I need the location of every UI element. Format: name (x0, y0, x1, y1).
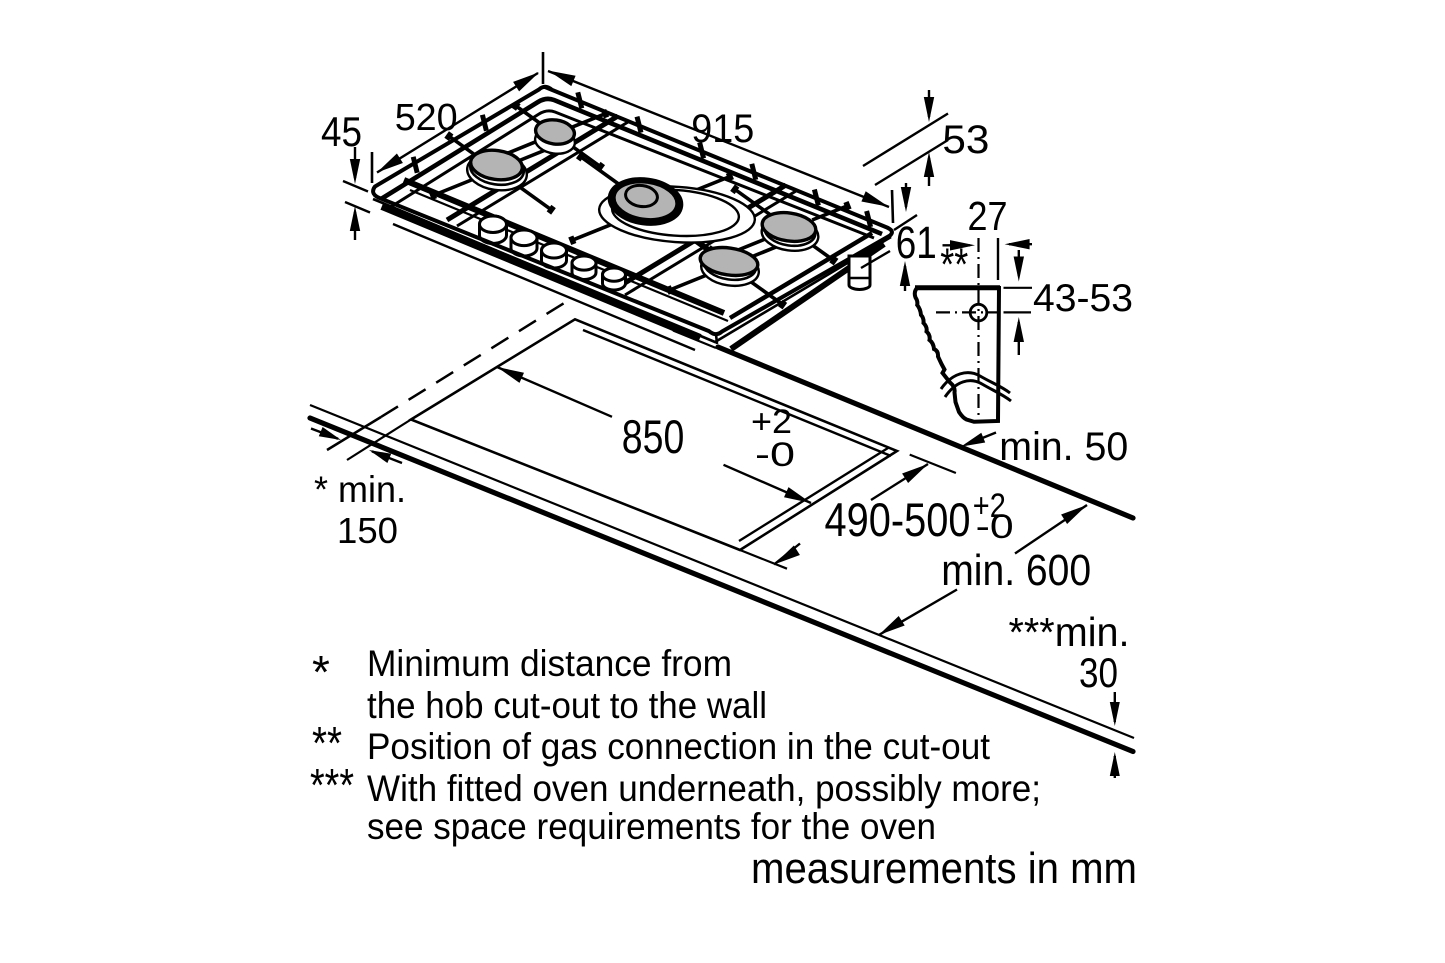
svg-text:43-53: 43-53 (1033, 277, 1133, 320)
svg-text:45: 45 (321, 108, 362, 155)
svg-text:With fitted oven underneath, p: With fitted oven underneath, possibly mo… (367, 768, 1041, 809)
svg-text:-0: -0 (976, 508, 1014, 546)
svg-text:520: 520 (395, 97, 458, 139)
svg-text:850: 850 (622, 410, 685, 463)
svg-text:min. 600: min. 600 (941, 546, 1091, 595)
svg-text:min. 50: min. 50 (999, 425, 1128, 469)
svg-text:Position of gas connection in: Position of gas connection in the cut-ou… (367, 726, 991, 767)
svg-text:***: *** (310, 759, 354, 811)
svg-text:* min.: * min. (314, 469, 406, 510)
svg-text:490-500: 490-500 (825, 493, 971, 546)
svg-text:-0: -0 (755, 436, 795, 474)
svg-text:27: 27 (968, 193, 1008, 239)
svg-text:61: 61 (896, 217, 937, 268)
svg-text:measurements in mm: measurements in mm (751, 844, 1137, 893)
svg-text:see space requirements for the: see space requirements for the oven (367, 806, 936, 847)
svg-text:Minimum distance from: Minimum distance from (367, 643, 732, 684)
svg-text:the hob cut-out to the wall: the hob cut-out to the wall (367, 685, 767, 726)
svg-text:53: 53 (942, 118, 989, 162)
svg-text:150: 150 (337, 510, 398, 551)
svg-text:915: 915 (691, 107, 754, 151)
svg-text:*: * (312, 646, 330, 698)
svg-text:30: 30 (1079, 649, 1118, 696)
svg-text:**: ** (940, 239, 968, 290)
